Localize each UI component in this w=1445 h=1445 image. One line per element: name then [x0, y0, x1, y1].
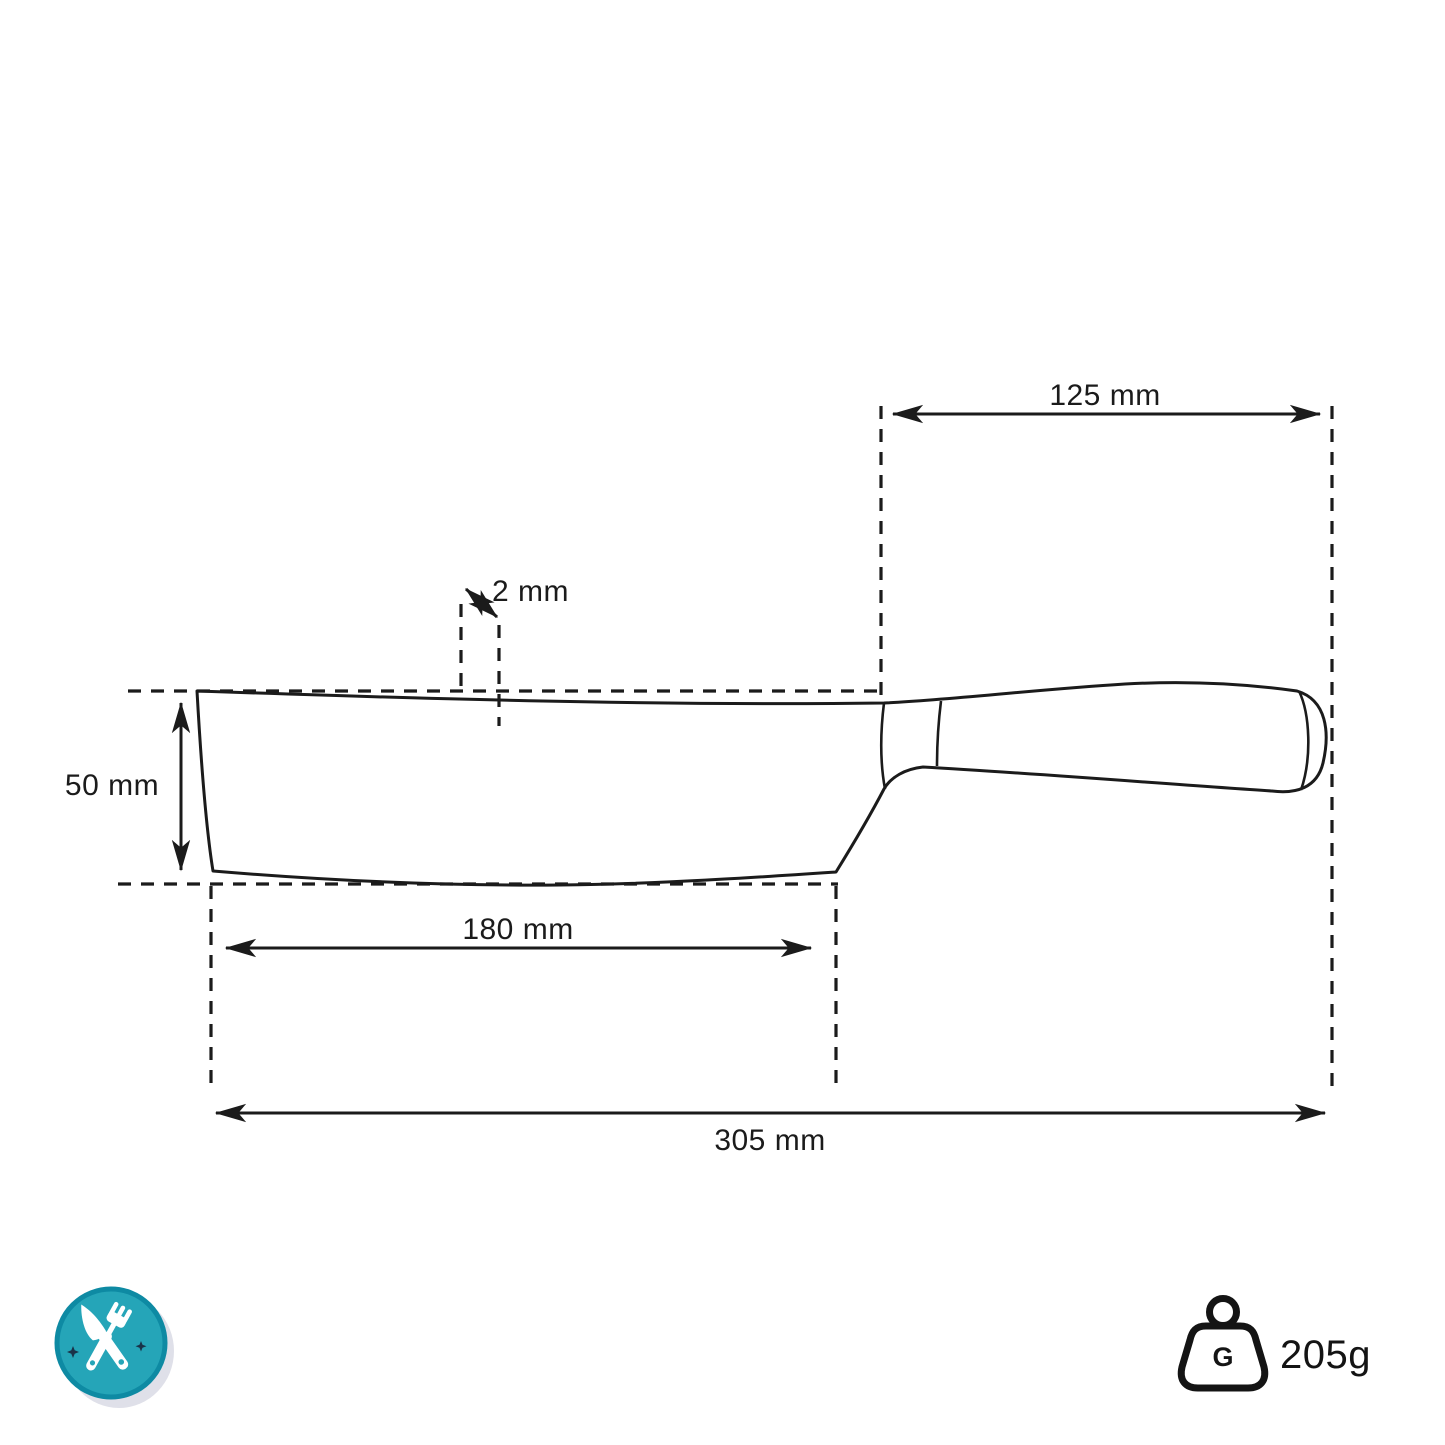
weight-icon-ring: [1210, 1299, 1237, 1326]
spine-thickness-label: 2 mm: [492, 577, 569, 607]
handle-length-label: 125 mm: [1049, 381, 1160, 411]
weight-icon-letter: G: [1212, 1344, 1233, 1371]
blade-height-label: 50 mm: [65, 771, 159, 801]
crossed-knife-fork-badge-icon: [57, 1289, 174, 1408]
knife-dimension-diagram: 125 mm 2 mm 50 mm 180 mm 305 mm G 205g: [0, 0, 1445, 1445]
total-length-label: 305 mm: [714, 1126, 825, 1156]
weight-value-label: 205g: [1280, 1335, 1371, 1375]
knife-silhouette: [197, 683, 1326, 885]
knife-outline-drawing: [0, 0, 1445, 1445]
blade-length-label: 180 mm: [462, 915, 573, 945]
knife-outline: [197, 683, 1326, 885]
